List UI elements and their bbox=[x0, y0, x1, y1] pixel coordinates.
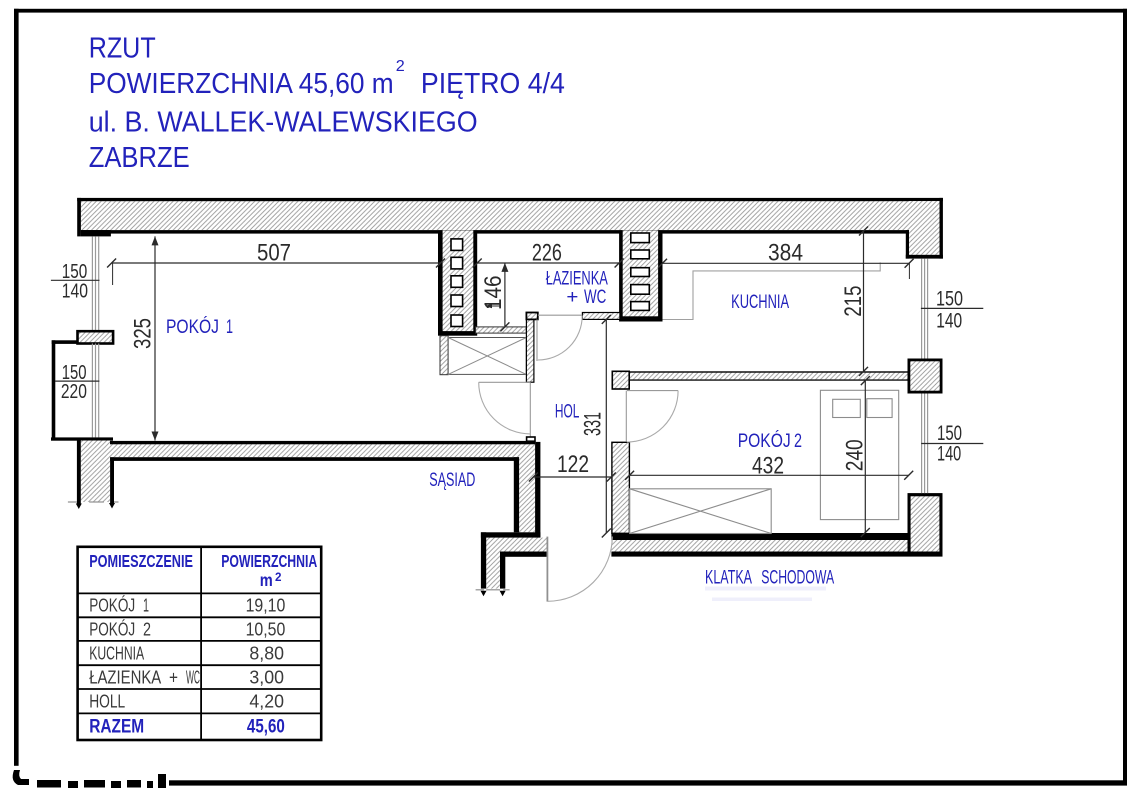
svg-text:POKÓJ: POKÓJ bbox=[89, 619, 135, 640]
svg-text:SCHODOWA: SCHODOWA bbox=[761, 568, 834, 589]
svg-text:PIĘTRO 4/4: PIĘTRO 4/4 bbox=[421, 68, 565, 100]
svg-text:2: 2 bbox=[794, 431, 802, 452]
svg-text:150: 150 bbox=[936, 288, 963, 311]
svg-text:ŁAZIENKA: ŁAZIENKA bbox=[89, 668, 161, 688]
svg-text:2: 2 bbox=[143, 620, 151, 640]
svg-text:HOLL: HOLL bbox=[89, 692, 125, 712]
svg-text:1: 1 bbox=[226, 317, 233, 338]
svg-text:140: 140 bbox=[936, 310, 962, 333]
svg-text:POMIESZCZENIE: POMIESZCZENIE bbox=[89, 551, 193, 571]
svg-text:WC: WC bbox=[584, 287, 606, 308]
svg-text:HOL: HOL bbox=[555, 402, 580, 423]
svg-text:POKÓJ: POKÓJ bbox=[738, 430, 791, 452]
svg-text:10,50: 10,50 bbox=[246, 620, 286, 640]
svg-text:325: 325 bbox=[130, 318, 157, 349]
svg-text:240: 240 bbox=[842, 439, 869, 471]
svg-text:432: 432 bbox=[752, 453, 784, 480]
svg-text:POKÓJ: POKÓJ bbox=[166, 316, 219, 338]
svg-text:2: 2 bbox=[275, 570, 282, 584]
svg-text:45,60: 45,60 bbox=[247, 716, 285, 737]
svg-text:KLATKA: KLATKA bbox=[705, 568, 752, 589]
svg-text:226: 226 bbox=[532, 240, 562, 267]
svg-text:331: 331 bbox=[580, 412, 607, 436]
svg-text:1: 1 bbox=[143, 596, 149, 616]
svg-text:+: + bbox=[566, 287, 578, 308]
svg-text:384: 384 bbox=[768, 240, 803, 267]
svg-text:+: + bbox=[169, 668, 178, 688]
svg-text:ZABRZE: ZABRZE bbox=[89, 142, 190, 174]
svg-text:RAZEM: RAZEM bbox=[89, 716, 144, 737]
svg-text:220: 220 bbox=[61, 381, 87, 403]
svg-text:4,20: 4,20 bbox=[249, 692, 284, 712]
svg-text:140: 140 bbox=[62, 281, 88, 303]
svg-text:3,00: 3,00 bbox=[249, 668, 284, 688]
svg-text:2: 2 bbox=[396, 58, 405, 75]
svg-text:m: m bbox=[260, 570, 273, 590]
svg-text:KUCHNIA: KUCHNIA bbox=[731, 292, 789, 313]
svg-text:140: 140 bbox=[937, 442, 961, 465]
svg-text:8,80: 8,80 bbox=[249, 644, 284, 664]
svg-text:SĄSIAD: SĄSIAD bbox=[429, 470, 475, 491]
svg-text:122: 122 bbox=[557, 451, 589, 478]
svg-text:507: 507 bbox=[257, 240, 291, 267]
svg-text:215: 215 bbox=[840, 286, 867, 317]
svg-text:POWIERZCHNIA 45,60 m: POWIERZCHNIA 45,60 m bbox=[89, 68, 394, 100]
svg-text:19,10: 19,10 bbox=[246, 596, 286, 616]
svg-text:ul. B. WALLEK-WALEWSKIEGO: ul. B. WALLEK-WALEWSKIEGO bbox=[89, 107, 478, 139]
svg-text:POWIERZCHNIA: POWIERZCHNIA bbox=[221, 551, 317, 571]
svg-text:KUCHNIA: KUCHNIA bbox=[89, 644, 144, 664]
svg-text:WC: WC bbox=[186, 668, 200, 688]
svg-text:POKÓJ: POKÓJ bbox=[89, 595, 135, 616]
svg-text:RZUT: RZUT bbox=[89, 33, 156, 65]
svg-text:146: 146 bbox=[480, 276, 507, 311]
